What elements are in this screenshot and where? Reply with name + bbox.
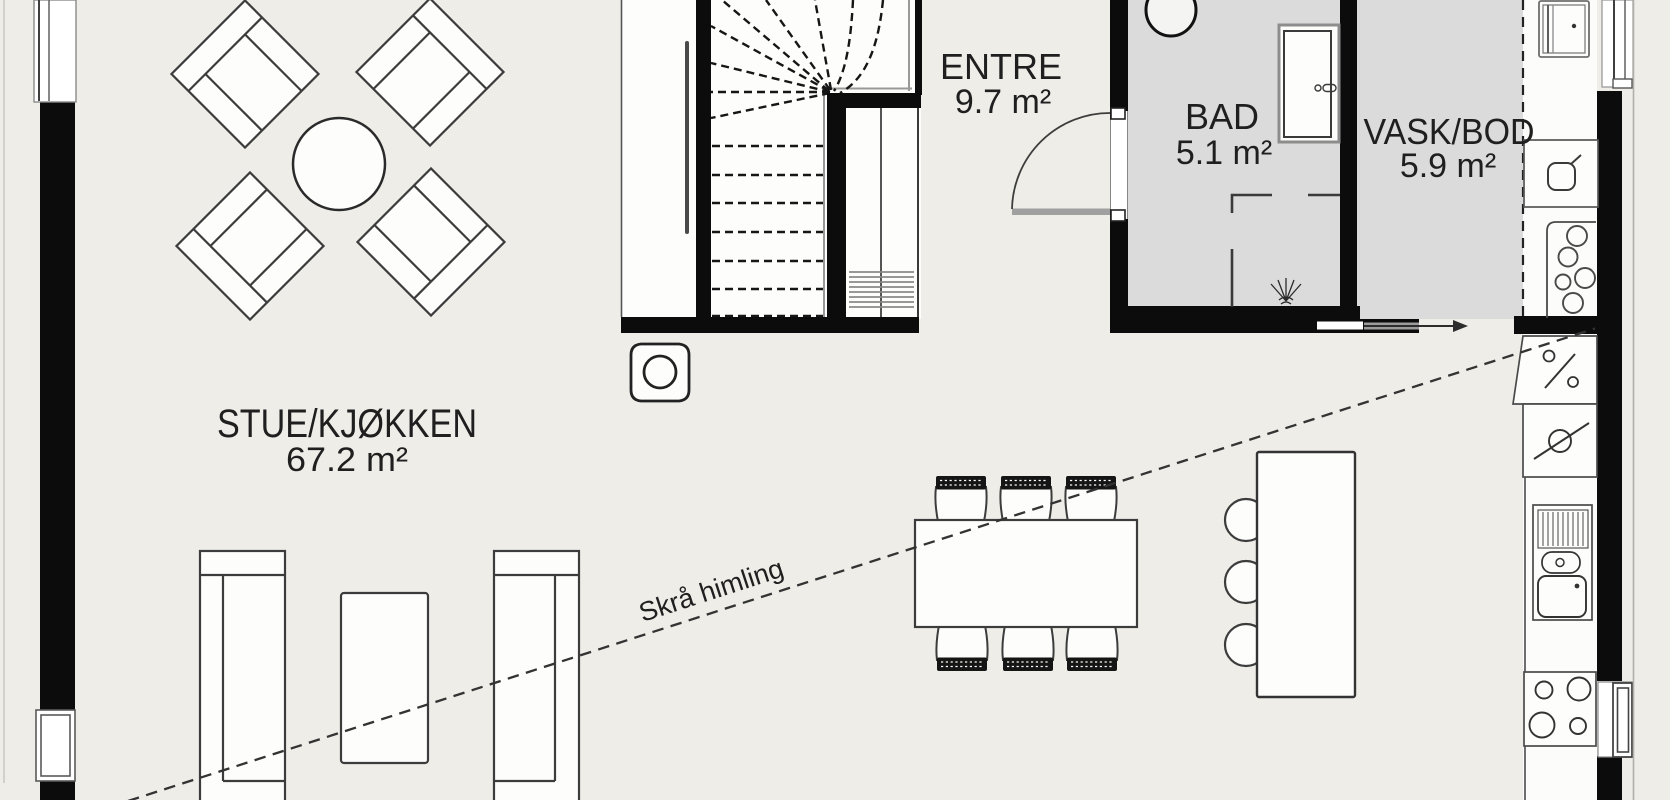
- svg-text:9.7 m²: 9.7 m²: [955, 83, 1051, 121]
- svg-text:67.2 m²: 67.2 m²: [286, 441, 408, 479]
- svg-text:ENTRE: ENTRE: [940, 46, 1062, 87]
- svg-text:VASK/BOD: VASK/BOD: [1364, 111, 1535, 152]
- svg-text:5.1 m²: 5.1 m²: [1176, 134, 1272, 172]
- svg-text:5.9 m²: 5.9 m²: [1400, 147, 1496, 185]
- svg-text:STUE/KJØKKEN: STUE/KJØKKEN: [217, 402, 477, 446]
- svg-text:BAD: BAD: [1185, 96, 1259, 137]
